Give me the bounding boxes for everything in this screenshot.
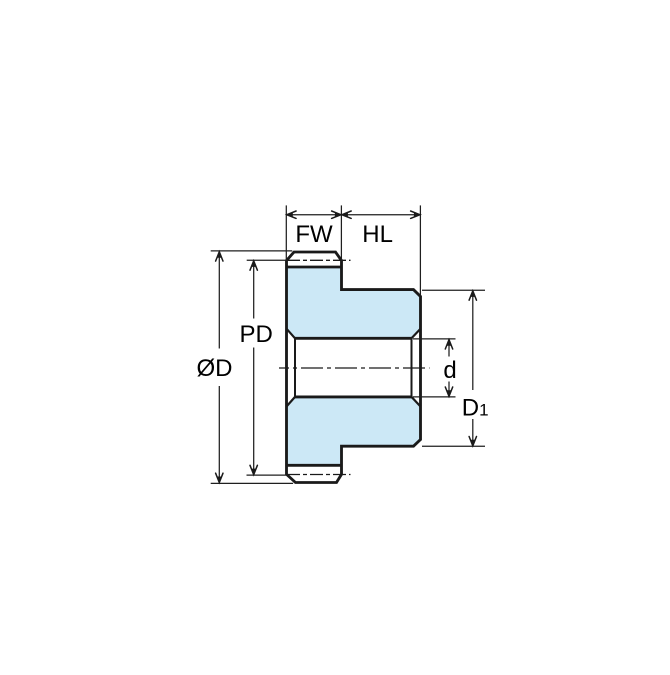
svg-text:HL: HL: [362, 221, 393, 248]
svg-text:d: d: [443, 357, 456, 384]
svg-text:PD: PD: [240, 321, 273, 348]
svg-text:ØD: ØD: [197, 355, 233, 382]
svg-text:FW: FW: [295, 221, 333, 248]
